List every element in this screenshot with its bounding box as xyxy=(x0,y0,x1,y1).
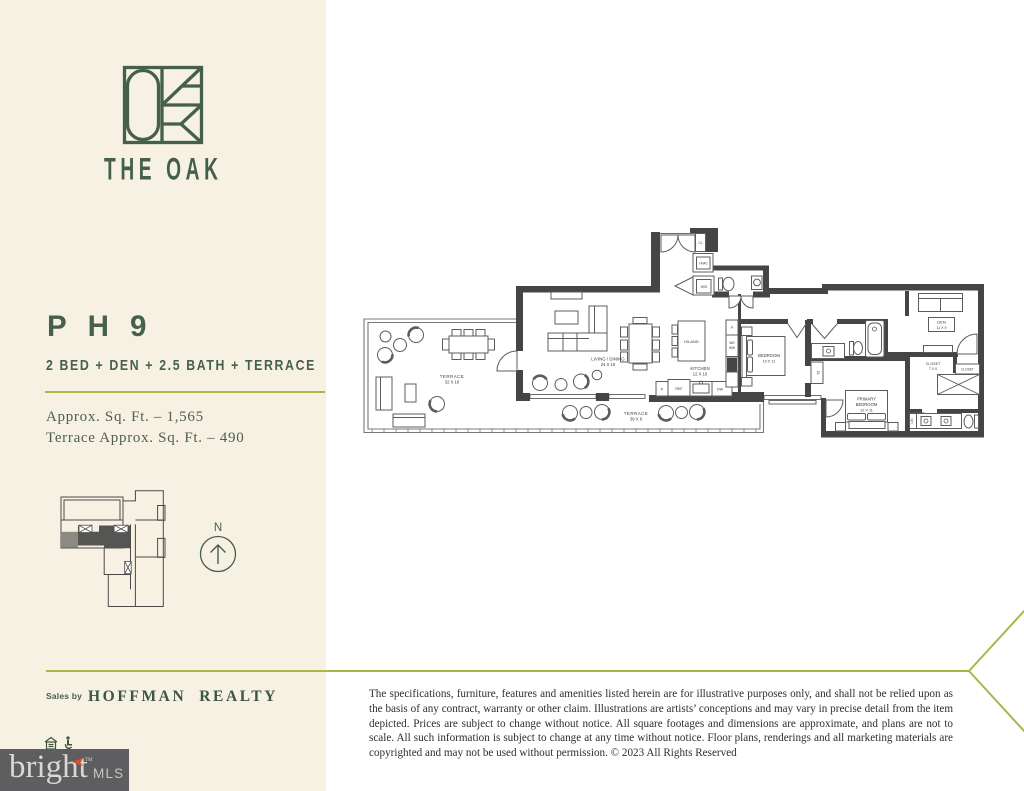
svg-text:11 X 9: 11 X 9 xyxy=(936,326,946,330)
svg-text:BEDROOM: BEDROOM xyxy=(758,353,780,358)
svg-text:LIN: LIN xyxy=(910,418,914,424)
svg-text:W/D: W/D xyxy=(701,285,708,289)
svg-text:CL: CL xyxy=(698,241,702,245)
svg-text:ISLAND: ISLAND xyxy=(684,339,699,344)
svg-text:DW: DW xyxy=(717,388,724,392)
svg-text:LIVING / DINING: LIVING / DINING xyxy=(591,357,625,362)
svg-text:KITCHEN: KITCHEN xyxy=(690,366,709,371)
svg-text:PRIMARY: PRIMARY xyxy=(857,397,876,402)
svg-text:24 X 16: 24 X 16 xyxy=(601,362,616,367)
svg-text:CLOSET: CLOSET xyxy=(926,362,941,366)
svg-text:7 X 5: 7 X 5 xyxy=(929,367,937,371)
svg-text:WD: WD xyxy=(729,341,735,345)
svg-text:TM: TM xyxy=(85,758,93,763)
svg-text:WW: WW xyxy=(729,346,735,350)
svg-text:CL: CL xyxy=(816,371,820,375)
svg-text:DEN: DEN xyxy=(937,320,946,325)
svg-text:32 X 16: 32 X 16 xyxy=(445,380,460,385)
svg-text:N: N xyxy=(214,522,222,534)
svg-text:BEDROOM: BEDROOM xyxy=(856,402,878,407)
svg-text:CLOSET: CLOSET xyxy=(961,368,974,372)
svg-text:HVAC: HVAC xyxy=(699,262,708,266)
svg-text:12 X 11: 12 X 11 xyxy=(860,409,873,413)
svg-text:12 X 10: 12 X 10 xyxy=(693,372,708,377)
svg-text:TERRACE: TERRACE xyxy=(440,374,464,379)
svg-text:REF: REF xyxy=(675,387,683,391)
svg-text:TERRACE: TERRACE xyxy=(624,411,648,416)
svg-text:10 X 11: 10 X 11 xyxy=(763,360,776,364)
svg-text:39 X 6: 39 X 6 xyxy=(630,417,643,422)
